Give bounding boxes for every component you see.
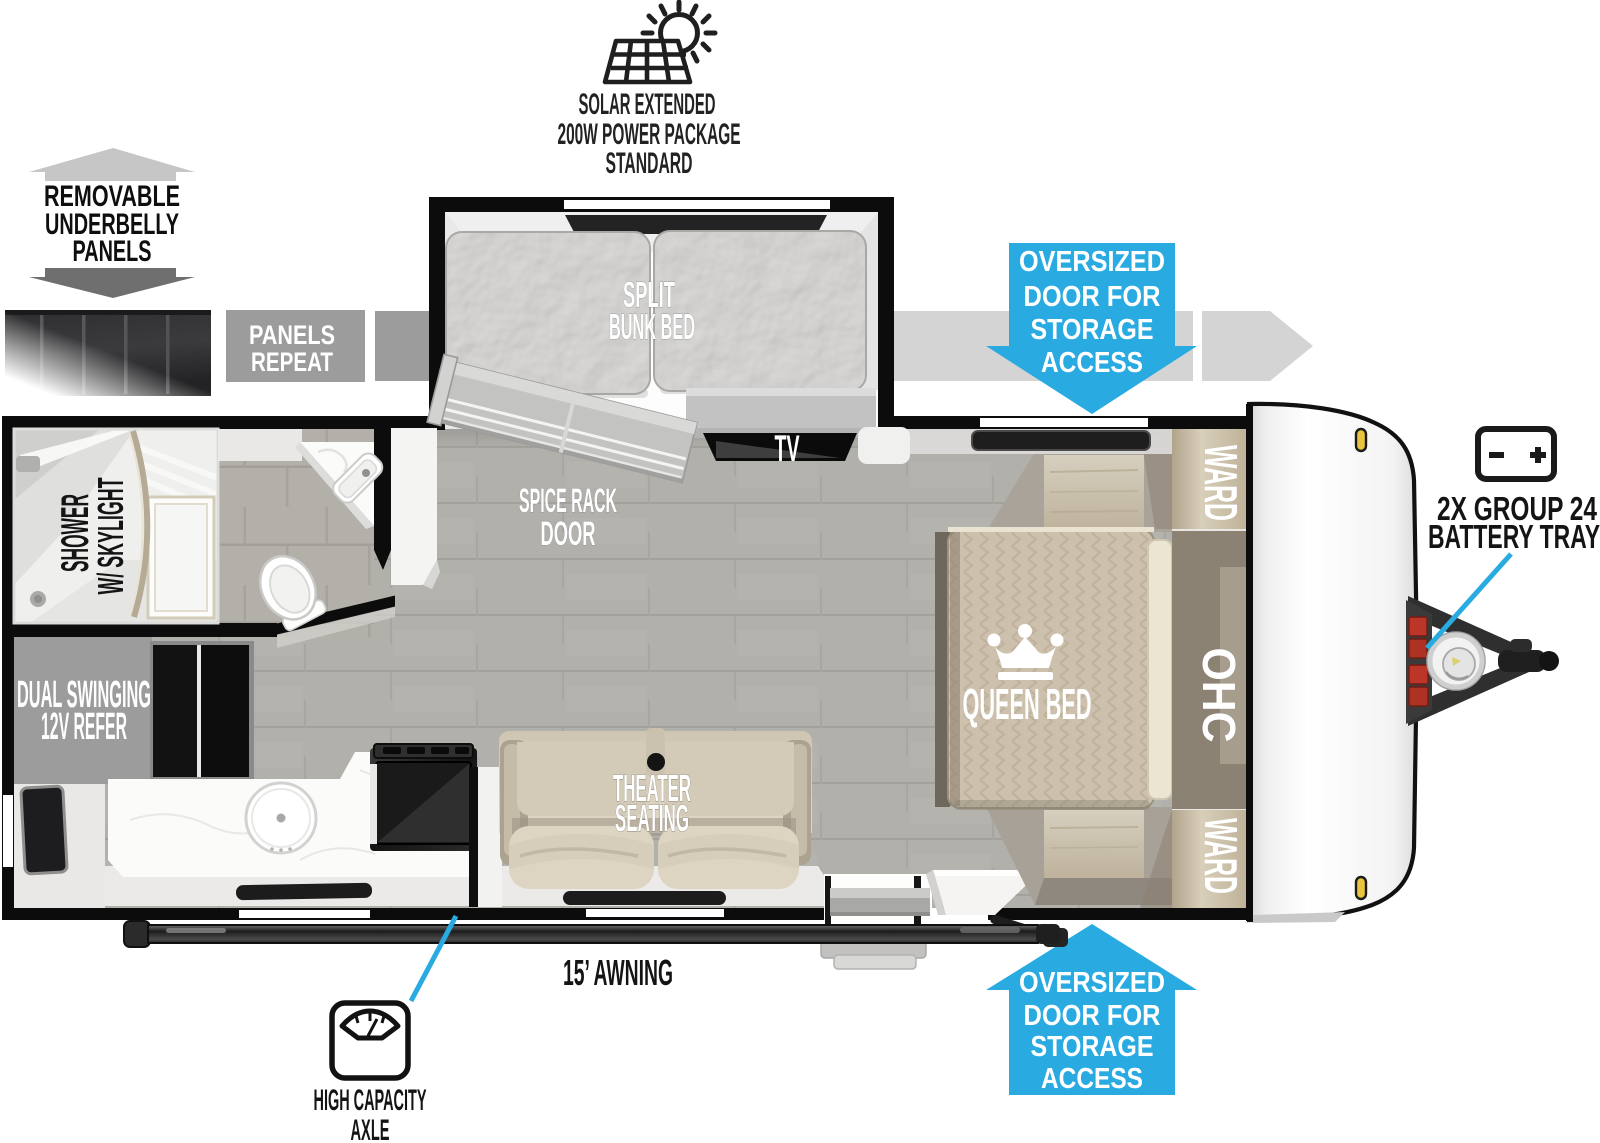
svg-text:STORAGE: STORAGE: [1031, 1031, 1154, 1063]
svg-text:SOLAR EXTENDED: SOLAR EXTENDED: [579, 88, 716, 121]
svg-text:STORAGE: STORAGE: [1031, 314, 1154, 346]
svg-text:QUEEN BED: QUEEN BED: [963, 680, 1092, 729]
svg-text:DOOR FOR: DOOR FOR: [1024, 281, 1161, 313]
svg-text:OVERSIZED: OVERSIZED: [1019, 246, 1165, 278]
svg-text:ACCESS: ACCESS: [1041, 347, 1143, 379]
svg-text:WARD: WARD: [1195, 445, 1247, 521]
svg-text:TV: TV: [775, 428, 800, 469]
svg-text:W/ SKYLIGHT: W/ SKYLIGHT: [90, 478, 131, 595]
svg-text:ACCESS: ACCESS: [1041, 1063, 1143, 1095]
svg-text:DOOR: DOOR: [541, 515, 596, 553]
svg-text:OHC: OHC: [1193, 648, 1245, 743]
svg-text:AXLE: AXLE: [351, 1114, 390, 1143]
svg-text:HIGH CAPACITY: HIGH CAPACITY: [314, 1084, 427, 1117]
svg-text:SEATING: SEATING: [615, 798, 689, 840]
svg-text:OVERSIZED: OVERSIZED: [1019, 967, 1165, 999]
svg-text:STANDARD: STANDARD: [606, 147, 693, 180]
svg-text:DOOR FOR: DOOR FOR: [1024, 1000, 1161, 1032]
svg-text:BUNK BED: BUNK BED: [609, 306, 695, 347]
svg-text:15’ AWNING: 15’ AWNING: [563, 952, 673, 993]
svg-text:PANELS: PANELS: [73, 235, 152, 268]
svg-text:REPEAT: REPEAT: [251, 347, 333, 377]
svg-text:BATTERY TRAY: BATTERY TRAY: [1428, 518, 1600, 555]
svg-text:PANELS: PANELS: [249, 320, 335, 350]
svg-text:12V REFER: 12V REFER: [41, 706, 127, 748]
svg-text:WARD: WARD: [1195, 818, 1247, 894]
